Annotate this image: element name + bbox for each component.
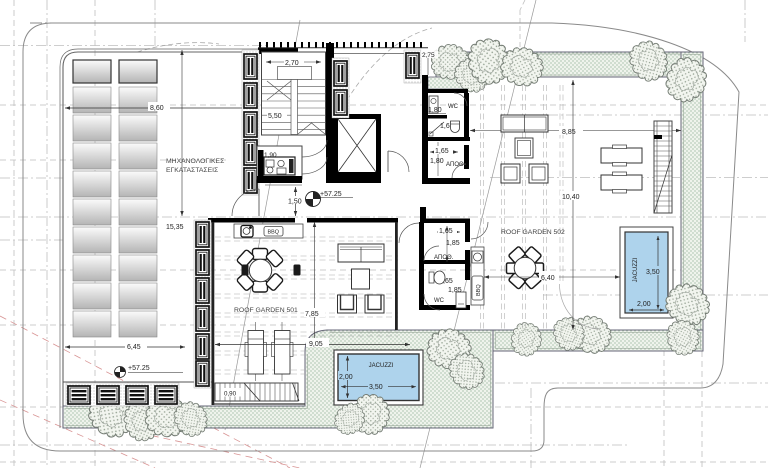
svg-text:WC: WC [448,104,459,110]
svg-text:JACUZZI: JACUZZI [369,363,394,369]
svg-text:+57.25: +57.25 [320,191,342,198]
svg-text:6,45: 6,45 [127,344,141,351]
svg-text:1,65: 1,65 [439,228,453,235]
svg-text:1,90: 1,90 [264,152,277,159]
svg-text:2,70: 2,70 [285,60,299,67]
svg-text:WC: WC [434,298,445,304]
svg-text:0,90: 0,90 [224,391,237,398]
svg-text:+57.25: +57.25 [128,365,150,372]
svg-text:BBQ: BBQ [476,284,482,296]
svg-text:BBQ: BBQ [268,230,279,236]
svg-text:1,50: 1,50 [288,199,302,206]
svg-text:ΑΠΟΘ.: ΑΠΟΘ. [446,162,466,168]
svg-text:2,00: 2,00 [637,301,651,308]
svg-text:ΑΠΟΘ.: ΑΠΟΘ. [434,255,454,261]
svg-text:2,00: 2,00 [339,374,353,381]
svg-text:,65: ,65 [443,278,453,285]
svg-text:1,80: 1,80 [428,107,442,114]
svg-text:3,50: 3,50 [369,384,383,391]
svg-text:JACUZZI: JACUZZI [633,257,639,282]
svg-text:6,40: 6,40 [541,275,555,282]
svg-text:7,85: 7,85 [305,311,319,318]
svg-text:3,50: 3,50 [646,269,660,276]
svg-text:5,50: 5,50 [268,113,282,120]
svg-text:15,35: 15,35 [166,224,184,231]
svg-text:1,65: 1,65 [435,148,449,155]
svg-text:2,75: 2,75 [422,52,435,59]
svg-text:8,85: 8,85 [562,129,576,136]
svg-text:ROOF GARDEN 502: ROOF GARDEN 502 [501,229,565,236]
svg-text:ΜΗΧΑΝΟΛΟΓΙΚΕΣ: ΜΗΧΑΝΟΛΟΓΙΚΕΣ [166,158,224,165]
svg-text:9,05: 9,05 [309,341,323,348]
svg-text:ΕΓΚΑΤΑΣΤΑΣΕΙΣ: ΕΓΚΑΤΑΣΤΑΣΕΙΣ [166,167,218,174]
svg-text:8,60: 8,60 [150,105,164,112]
svg-text:1,85: 1,85 [446,240,460,247]
svg-text:10,40: 10,40 [562,194,580,201]
svg-text:1,80: 1,80 [430,158,444,165]
svg-text:ROOF GARDEN 501: ROOF GARDEN 501 [234,307,298,314]
